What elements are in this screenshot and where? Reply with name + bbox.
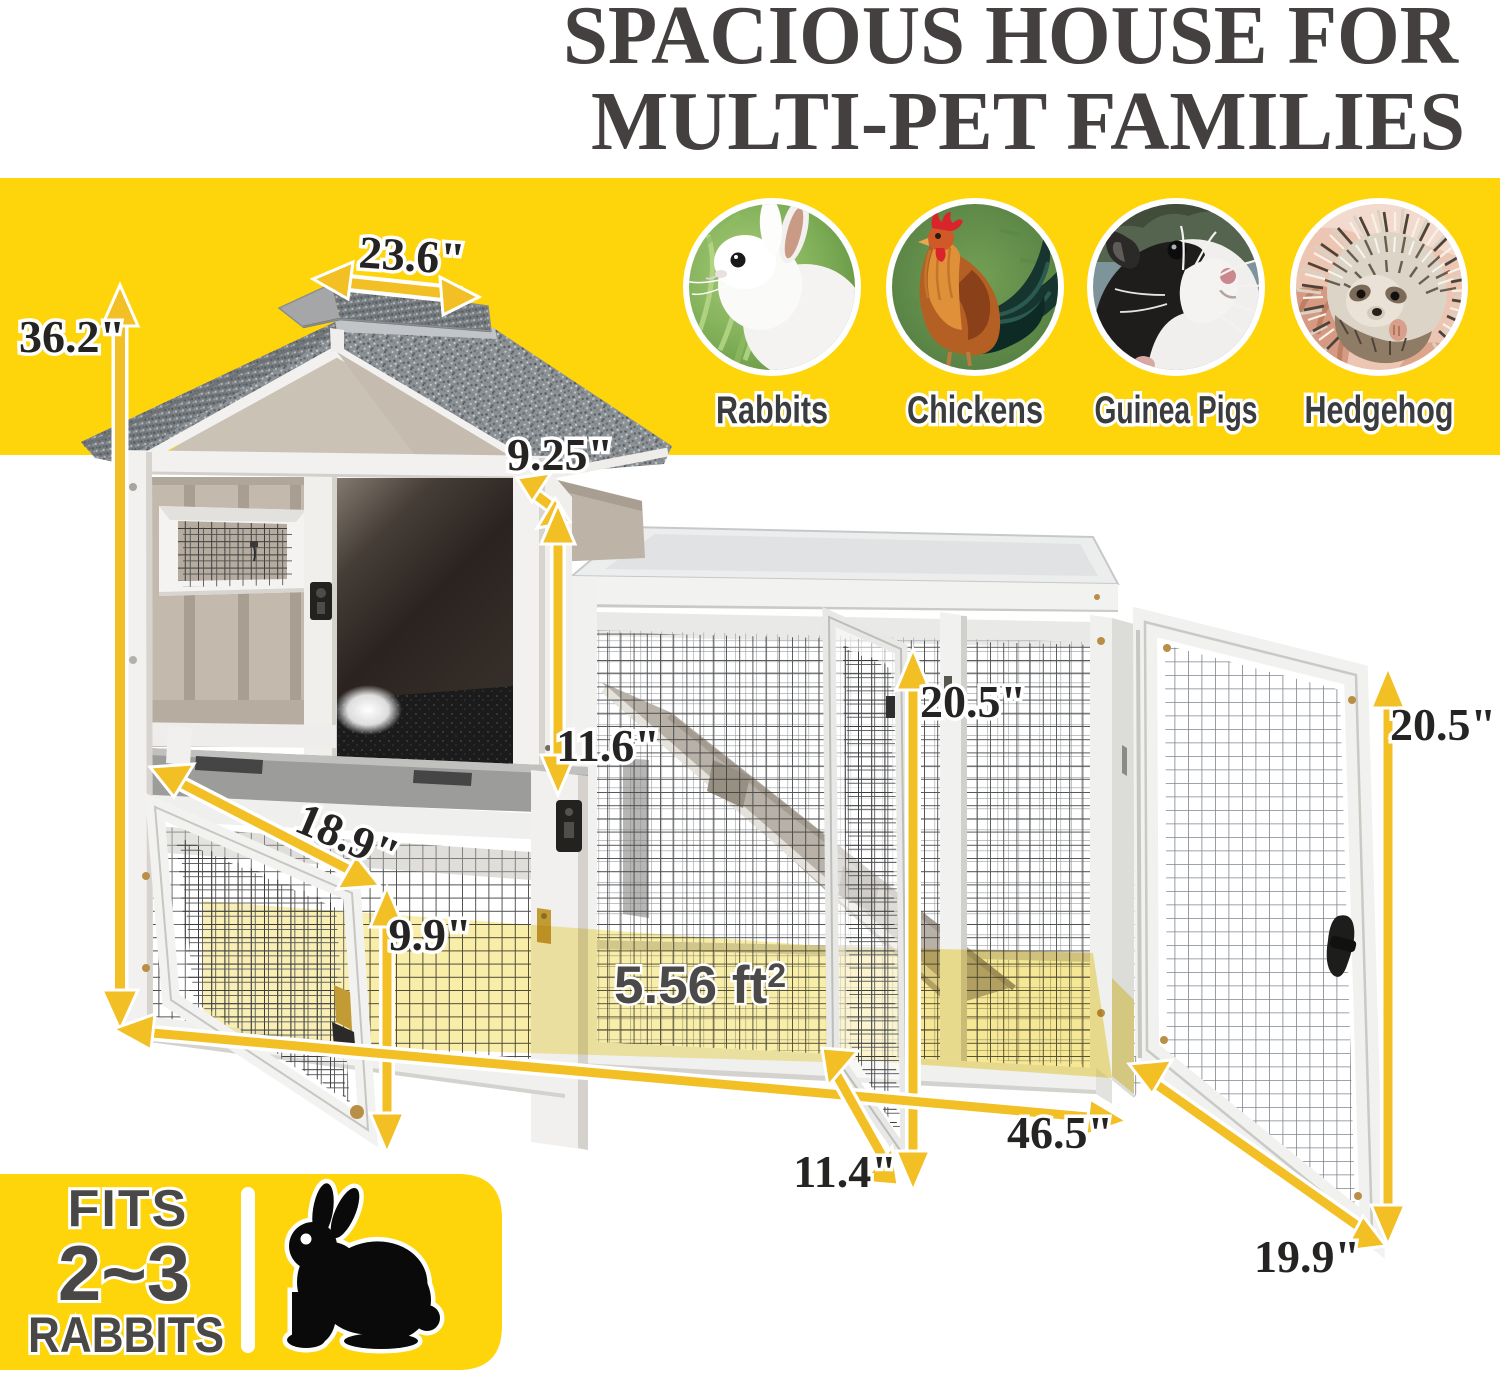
svg-text:20.5": 20.5": [920, 676, 1026, 727]
svg-text:SPACIOUS HOUSE FOR: SPACIOUS HOUSE FOR: [563, 0, 1459, 82]
svg-text:19.9": 19.9": [1254, 1231, 1360, 1282]
svg-text:46.5": 46.5": [1007, 1107, 1113, 1158]
svg-text:20.5": 20.5": [1390, 699, 1496, 750]
svg-text:11.4": 11.4": [793, 1146, 897, 1197]
svg-text:11.6": 11.6": [556, 720, 660, 771]
svg-text:MULTI-PET FAMILIES: MULTI-PET FAMILIES: [591, 75, 1465, 168]
svg-text:2~3: 2~3: [58, 1229, 190, 1317]
svg-text:36.2": 36.2": [19, 311, 125, 362]
svg-text:9.25": 9.25": [507, 429, 613, 480]
svg-text:Rabbits: Rabbits: [716, 389, 828, 432]
svg-text:5.56 ft2: 5.56 ft2: [614, 956, 786, 1015]
svg-text:23.6": 23.6": [357, 226, 466, 284]
svg-text:Hedgehog: Hedgehog: [1305, 389, 1454, 432]
svg-text:RABBITS: RABBITS: [28, 1307, 224, 1363]
svg-text:Guinea Pigs: Guinea Pigs: [1095, 389, 1258, 432]
svg-text:Chickens: Chickens: [907, 389, 1043, 432]
svg-text:9.9": 9.9": [388, 909, 471, 960]
